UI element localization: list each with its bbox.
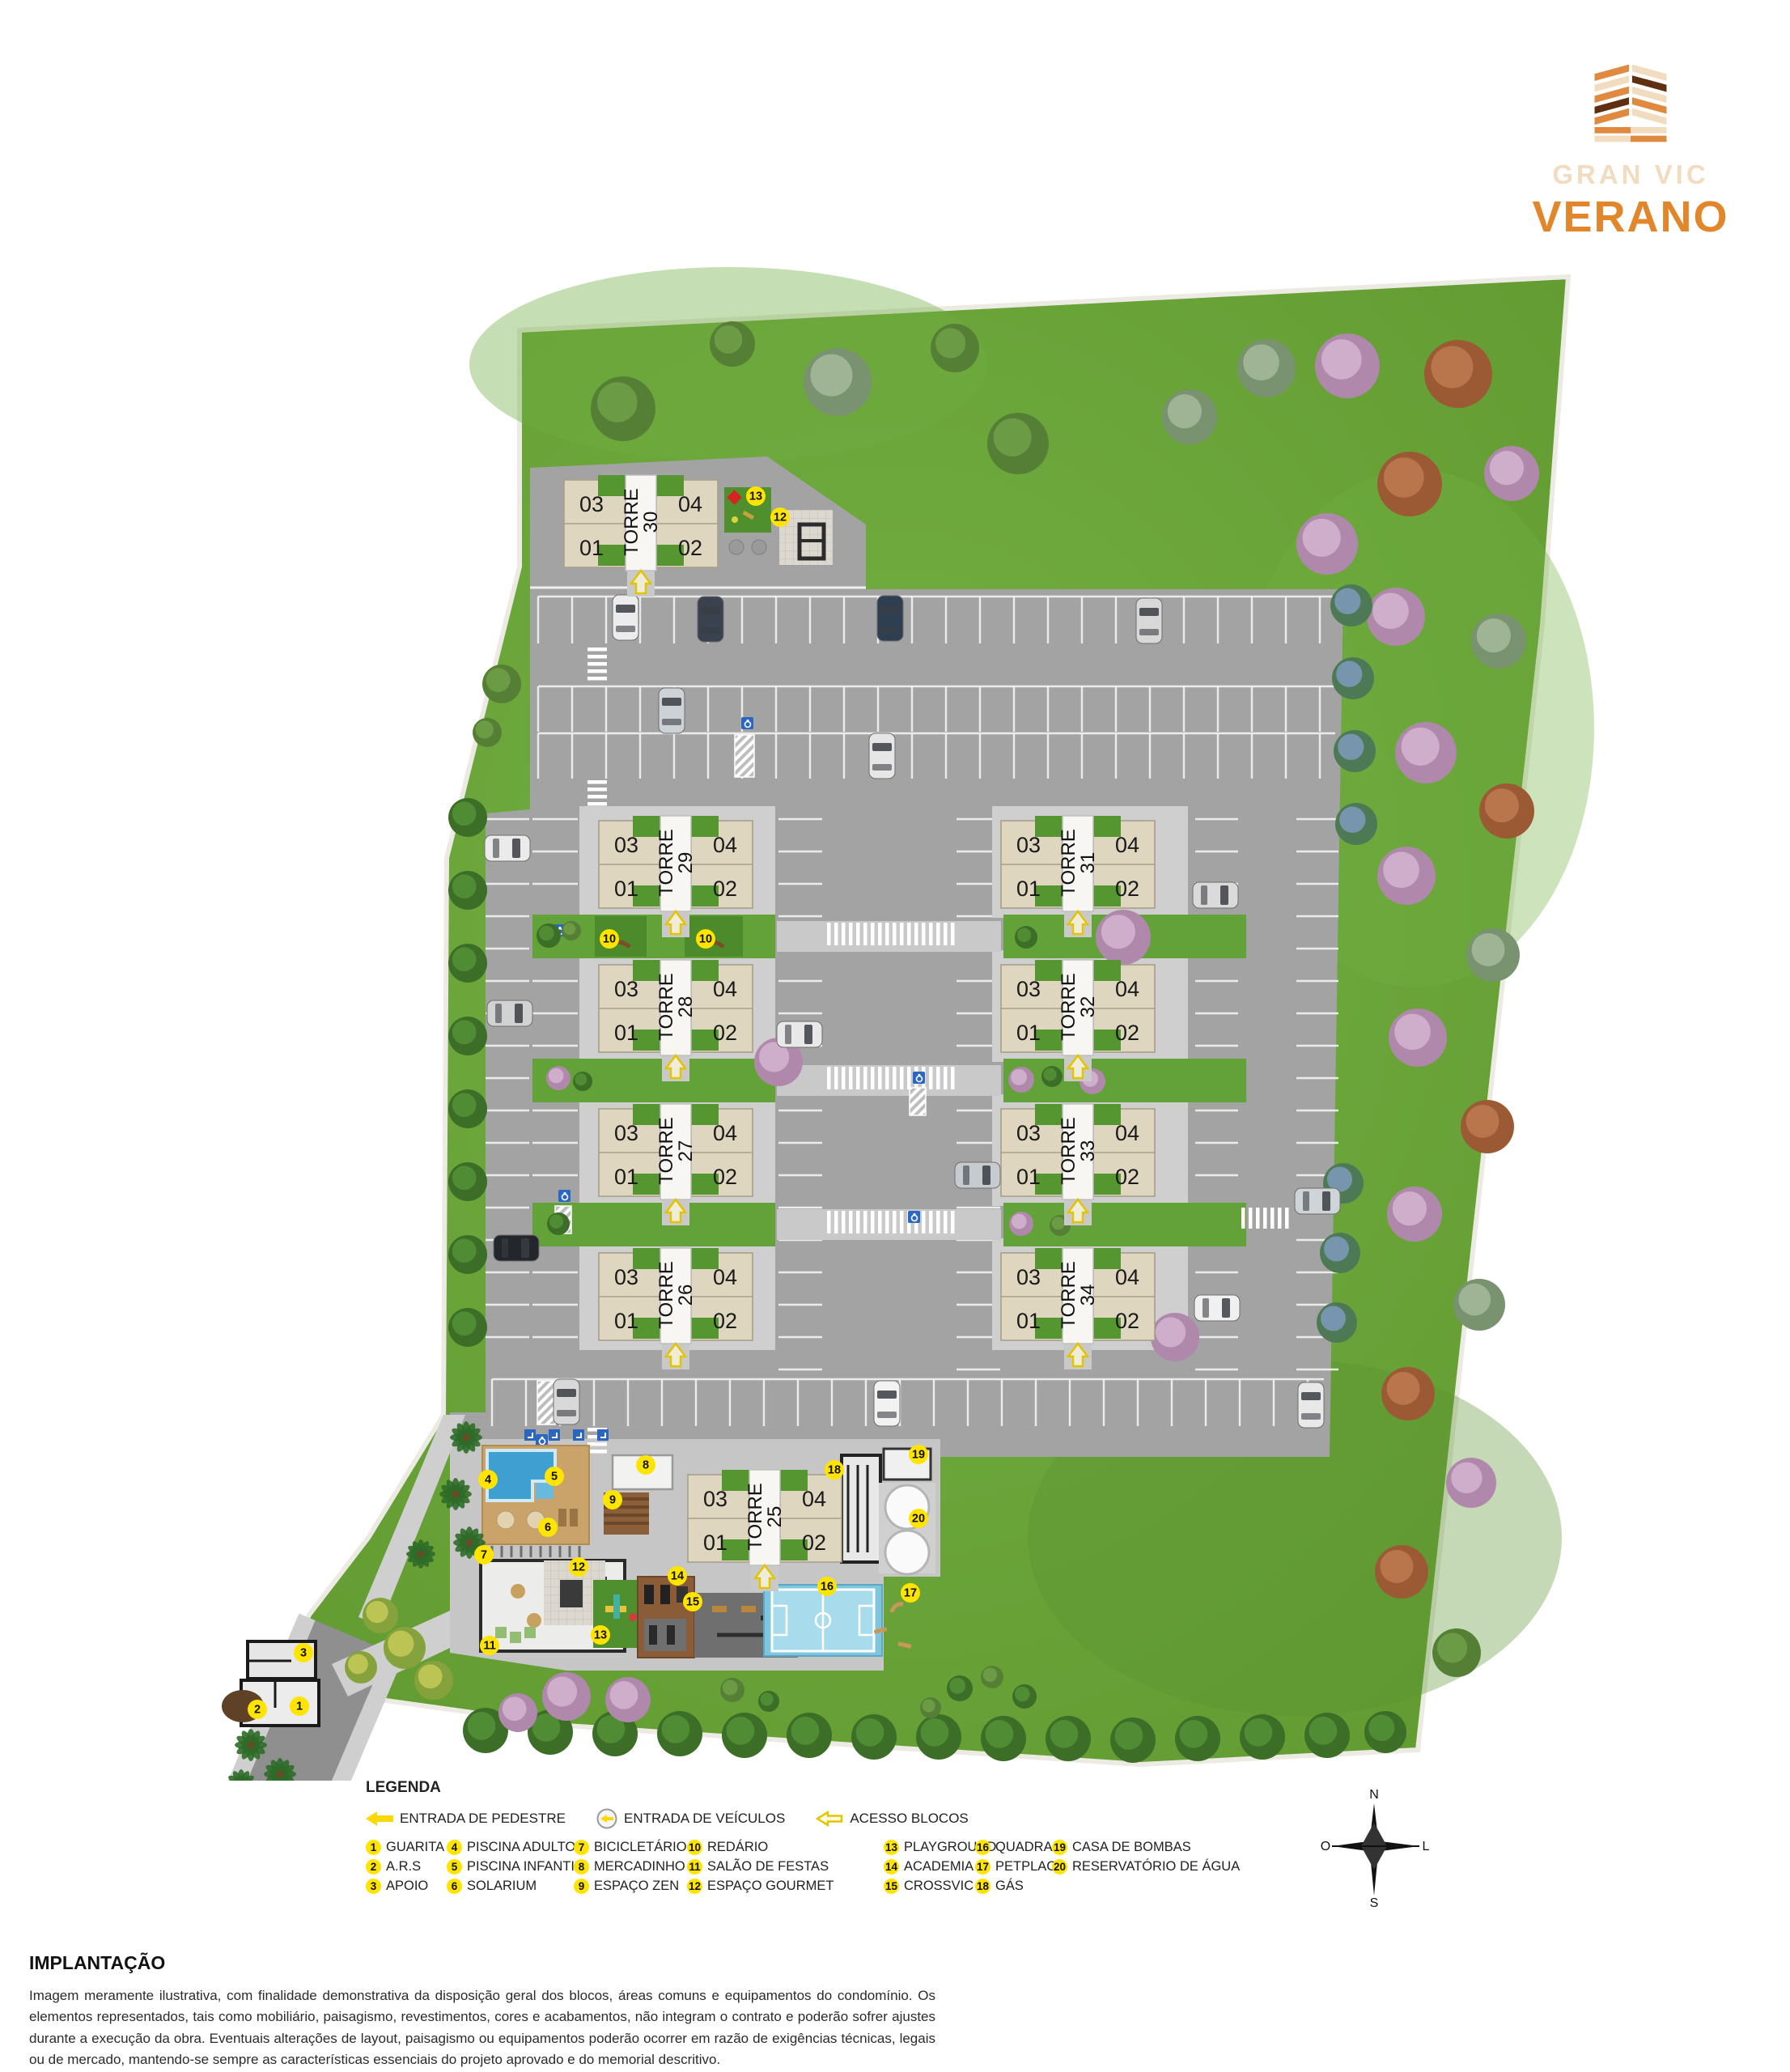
handicap-sign xyxy=(536,1434,548,1446)
unit-label: 02 xyxy=(1115,1309,1139,1333)
unit-label: 01 xyxy=(1016,1021,1041,1045)
tree xyxy=(1453,1279,1505,1331)
tree xyxy=(1446,1458,1496,1508)
tree xyxy=(1320,1233,1360,1273)
unit-label: 04 xyxy=(713,833,737,857)
legend-item-label: GUARITA xyxy=(386,1840,444,1855)
tree xyxy=(1387,1187,1442,1242)
unit-label: 04 xyxy=(713,1121,737,1145)
tree xyxy=(947,1675,973,1701)
plan-marker-19: 19 xyxy=(909,1445,928,1464)
svg-text:TORRE: TORRE xyxy=(655,973,677,1041)
tree xyxy=(591,376,655,441)
legend-item-10: 10REDÁRIO xyxy=(687,1837,833,1857)
unit-label: 03 xyxy=(1016,977,1041,1001)
unit-label: 03 xyxy=(614,1265,638,1289)
brand-logo: GRAN VIC VERANO xyxy=(1521,57,1740,242)
tree xyxy=(1008,1067,1034,1093)
svg-text:30: 30 xyxy=(640,512,662,533)
plan-marker-14: 14 xyxy=(668,1566,687,1586)
compass-star xyxy=(1332,1803,1419,1896)
legend-item-1: 1GUARITA xyxy=(366,1837,444,1857)
tree xyxy=(657,1711,702,1756)
svg-text:TORRE: TORRE xyxy=(744,1483,766,1551)
tree xyxy=(1315,333,1380,398)
plan-marker-1: 1 xyxy=(290,1696,309,1716)
legend-item-number: 16 xyxy=(975,1840,990,1855)
compass-north: N xyxy=(1369,1788,1379,1802)
tree xyxy=(981,1716,1026,1761)
svg-text:33: 33 xyxy=(1077,1140,1099,1162)
svg-text:TORRE: TORRE xyxy=(1058,1117,1080,1185)
footer-disclaimer: Imagem meramente ilustrativa, com finali… xyxy=(29,1985,935,2070)
car xyxy=(698,597,723,642)
car xyxy=(777,1021,822,1047)
legend-item-number: 12 xyxy=(687,1879,702,1894)
tree xyxy=(546,1066,571,1090)
no-parking-hatch xyxy=(537,1381,555,1424)
plan-marker-18: 18 xyxy=(825,1460,844,1480)
svg-text:17: 17 xyxy=(904,1587,917,1600)
svg-text:15: 15 xyxy=(686,1596,699,1609)
svg-text:14: 14 xyxy=(671,1570,684,1583)
tree xyxy=(1395,722,1457,783)
tree xyxy=(1432,1628,1481,1677)
tree xyxy=(448,1162,487,1201)
svg-text:8: 8 xyxy=(643,1459,649,1472)
footer-title: IMPLANTAÇÃO xyxy=(29,1952,935,1974)
legend-entrance-label: ENTRADA DE VEÍCULOS xyxy=(624,1811,785,1827)
svg-text:1: 1 xyxy=(296,1700,303,1713)
handicap-sign xyxy=(908,1211,920,1223)
brand-building-icon xyxy=(1584,57,1678,151)
svg-text:29: 29 xyxy=(675,852,697,874)
legend-title: LEGENDA xyxy=(366,1779,1450,1797)
legend-item-number: 8 xyxy=(574,1859,589,1875)
legend-item-number: 10 xyxy=(687,1840,702,1855)
legend-column: 4PISCINA ADULTO5PISCINA INFANTIL6SOLARIU… xyxy=(447,1837,582,1896)
plan-marker-20: 20 xyxy=(909,1509,928,1528)
tree xyxy=(920,1697,941,1718)
car xyxy=(1298,1382,1324,1428)
legend-item-19: 19CASA DE BOMBAS xyxy=(1052,1837,1240,1857)
unit-label: 04 xyxy=(1115,1265,1139,1289)
plan-marker-13: 13 xyxy=(591,1625,610,1645)
unit-label: 03 xyxy=(1016,833,1041,857)
plan-marker-4: 4 xyxy=(478,1470,498,1489)
legend-item-label: ACADEMIA xyxy=(904,1859,973,1875)
tree xyxy=(720,1678,744,1702)
tree xyxy=(1296,513,1358,575)
svg-text:TORRE: TORRE xyxy=(655,1117,677,1185)
legend-item-number: 15 xyxy=(884,1879,899,1894)
legend-item-label: RESERVATÓRIO DE ÁGUA xyxy=(1072,1859,1240,1875)
svg-text:12: 12 xyxy=(572,1561,585,1574)
svg-text:26: 26 xyxy=(675,1284,697,1306)
block-access-arrow-icon xyxy=(816,1811,843,1827)
plan-marker-17: 17 xyxy=(901,1583,920,1603)
car xyxy=(1193,882,1238,908)
unit-label: 03 xyxy=(579,492,604,516)
unit-label: 02 xyxy=(713,1309,737,1333)
legend-item-12: 12ESPAÇO GOURMET xyxy=(687,1876,833,1896)
legend-item-9: 9ESPAÇO ZEN xyxy=(574,1876,687,1896)
tree xyxy=(448,944,487,983)
site-plan: 03040102TORRE3003040102TORRE2903040102TO… xyxy=(0,0,1790,1781)
car xyxy=(554,1379,579,1424)
tree xyxy=(1304,1713,1350,1758)
svg-text:13: 13 xyxy=(749,490,762,503)
legend-item-label: QUADRA xyxy=(995,1840,1053,1855)
unit-label: 04 xyxy=(1115,833,1139,857)
unit-label: 02 xyxy=(713,1165,737,1189)
car xyxy=(659,688,685,733)
legend-item-number: 18 xyxy=(975,1879,990,1894)
tree xyxy=(448,1308,487,1347)
car xyxy=(877,596,903,641)
plan-marker-16: 16 xyxy=(817,1577,837,1596)
tree xyxy=(537,923,561,948)
unit-label: 02 xyxy=(713,1021,737,1045)
tree xyxy=(414,1661,453,1700)
legend-item-label: CASA DE BOMBAS xyxy=(1072,1840,1191,1855)
unit-label: 04 xyxy=(802,1487,826,1511)
compass-rose: N S O L xyxy=(1319,1781,1432,1910)
plan-marker-11: 11 xyxy=(480,1636,499,1655)
tree xyxy=(542,1672,591,1721)
tree xyxy=(722,1713,767,1758)
tree xyxy=(498,1693,537,1732)
tree xyxy=(1012,1684,1037,1709)
tree xyxy=(1334,730,1376,772)
unit-label: 04 xyxy=(678,492,702,516)
tree xyxy=(1332,657,1374,699)
unit-label: 04 xyxy=(713,977,737,1001)
legend-item-number: 2 xyxy=(366,1859,381,1875)
unit-label: 03 xyxy=(614,833,638,857)
tree xyxy=(562,921,581,940)
tree xyxy=(1162,389,1217,444)
tree xyxy=(1046,1716,1091,1761)
tree xyxy=(1367,588,1425,646)
tree xyxy=(573,1072,592,1091)
svg-text:20: 20 xyxy=(912,1513,925,1526)
unit-label: 01 xyxy=(1016,1165,1041,1189)
svg-text:2: 2 xyxy=(254,1704,261,1717)
tree xyxy=(1364,1711,1406,1753)
svg-text:12: 12 xyxy=(774,512,787,524)
car xyxy=(613,595,638,640)
tree xyxy=(482,664,521,703)
compass-south: S xyxy=(1370,1896,1379,1910)
legend-item-7: 7BICICLETÁRIO xyxy=(574,1837,687,1857)
legend-item-label: SOLARIUM xyxy=(467,1879,537,1894)
unit-label: 02 xyxy=(1115,1021,1139,1045)
implantation-page: { "brand": { "name_top": "GRAN VIC", "na… xyxy=(0,0,1790,2072)
plan-marker-9: 9 xyxy=(603,1490,622,1509)
svg-text:28: 28 xyxy=(675,996,697,1018)
tree xyxy=(1479,783,1534,839)
plan-marker-12: 12 xyxy=(770,507,790,527)
tree xyxy=(1377,847,1436,905)
tree xyxy=(384,1627,426,1669)
svg-text:34: 34 xyxy=(1077,1284,1099,1306)
tree xyxy=(1041,1066,1063,1087)
unit-label: 02 xyxy=(802,1531,826,1555)
legend-entrance-label: ACESSO BLOCOS xyxy=(850,1811,968,1827)
unit-label: 01 xyxy=(1016,1309,1041,1333)
tree xyxy=(1330,584,1372,626)
pool-deck xyxy=(482,1446,589,1544)
tree xyxy=(448,1235,487,1274)
tree xyxy=(1096,910,1151,965)
car xyxy=(494,1235,539,1261)
no-parking-hatch xyxy=(735,735,754,777)
unit-label: 01 xyxy=(579,536,604,560)
legend-item-number: 11 xyxy=(687,1859,702,1875)
tree xyxy=(1110,1717,1156,1763)
sports-court xyxy=(764,1585,882,1656)
plan-marker-3: 3 xyxy=(294,1643,313,1662)
legend-item-20: 20RESERVATÓRIO DE ÁGUA xyxy=(1052,1857,1240,1876)
tree xyxy=(1015,926,1037,949)
svg-text:TORRE: TORRE xyxy=(1058,829,1080,897)
legend-item-label: PISCINA INFANTIL xyxy=(467,1859,582,1875)
car xyxy=(1136,598,1162,643)
car xyxy=(487,1000,532,1026)
legend-item-number: 4 xyxy=(447,1840,462,1855)
legend-item-label: ESPAÇO ZEN xyxy=(594,1879,679,1894)
legend-item-number: 13 xyxy=(884,1840,899,1855)
tree xyxy=(1151,1313,1199,1361)
plan-marker-15: 15 xyxy=(683,1592,702,1611)
pedestrian-entrance-arrow-icon xyxy=(366,1811,393,1826)
compass-east: L xyxy=(1423,1840,1430,1853)
legend-item-label: REDÁRIO xyxy=(707,1840,768,1855)
unit-label: 02 xyxy=(713,877,737,901)
svg-text:18: 18 xyxy=(828,1464,841,1477)
unit-label: 03 xyxy=(1016,1121,1041,1145)
tree xyxy=(758,1691,779,1712)
car xyxy=(1194,1295,1240,1321)
legend-column: 7BICICLETÁRIO8MERCADINHO9ESPAÇO ZEN xyxy=(574,1837,687,1896)
unit-label: 04 xyxy=(713,1265,737,1289)
unit-label: 01 xyxy=(614,1021,638,1045)
svg-text:16: 16 xyxy=(821,1581,833,1594)
legend-item-5: 5PISCINA INFANTIL xyxy=(447,1857,582,1876)
tree xyxy=(1009,1212,1033,1236)
tree xyxy=(1335,803,1377,845)
legend-item-label: ESPAÇO GOURMET xyxy=(707,1879,833,1894)
legend-item-number: 1 xyxy=(366,1840,381,1855)
plan-marker-13: 13 xyxy=(746,486,766,506)
legend-entrance-blocks: ACESSO BLOCOS xyxy=(816,1811,968,1827)
tree xyxy=(1461,1100,1514,1153)
car xyxy=(1295,1188,1340,1214)
tree xyxy=(851,1714,897,1760)
tree xyxy=(710,321,755,367)
tree xyxy=(931,324,979,372)
svg-text:TORRE: TORRE xyxy=(1058,973,1080,1041)
legend-entrance-vehicle: ENTRADA DE VEÍCULOS xyxy=(596,1808,785,1829)
legend-item-label: BICICLETÁRIO xyxy=(594,1840,687,1855)
svg-text:9: 9 xyxy=(609,1494,616,1507)
vehicle-entrance-icon xyxy=(596,1808,617,1829)
tree xyxy=(787,1713,832,1758)
legend-entrances: ENTRADA DE PEDESTRE ENTRADA DE VEÍCULOS … xyxy=(366,1808,969,1829)
legend-item-number: 14 xyxy=(884,1859,899,1875)
legend-item-8: 8MERCADINHO xyxy=(574,1857,687,1876)
legend-item-6: 6SOLARIUM xyxy=(447,1876,582,1896)
unit-label: 04 xyxy=(1115,1121,1139,1145)
unit-label: 01 xyxy=(614,877,638,901)
legend-item-label: GÁS xyxy=(995,1879,1024,1894)
svg-text:31: 31 xyxy=(1077,852,1099,874)
handicap-sign xyxy=(741,717,753,729)
tree xyxy=(1424,340,1492,408)
svg-text:10: 10 xyxy=(603,933,616,946)
tree xyxy=(605,1677,651,1722)
tree xyxy=(1484,446,1539,501)
unit-label: 02 xyxy=(678,536,702,560)
svg-text:7: 7 xyxy=(481,1549,487,1562)
legend-item-4: 4PISCINA ADULTO xyxy=(447,1837,582,1857)
legend-item-label: MERCADINHO xyxy=(594,1859,685,1875)
unit-label: 03 xyxy=(614,977,638,1001)
plan-marker-7: 7 xyxy=(474,1545,494,1565)
car xyxy=(485,835,530,861)
unit-label: 03 xyxy=(703,1487,727,1511)
legend-item-number: 17 xyxy=(975,1859,990,1875)
svg-text:19: 19 xyxy=(912,1449,925,1462)
legend-item-label: CROSSVIC xyxy=(904,1879,973,1894)
handicap-sign xyxy=(913,1072,925,1084)
gas-station xyxy=(842,1455,880,1562)
legend-item-label: APOIO xyxy=(386,1879,428,1894)
legend-item-11: 11SALÃO DE FESTAS xyxy=(687,1857,833,1876)
tree xyxy=(1240,1714,1285,1760)
legend-item-label: SALÃO DE FESTAS xyxy=(707,1859,829,1875)
car xyxy=(955,1162,1000,1188)
water-tanks xyxy=(879,1483,935,1574)
no-parking-hatch xyxy=(910,1088,926,1115)
svg-text:13: 13 xyxy=(594,1629,607,1642)
svg-text:6: 6 xyxy=(545,1522,551,1535)
plan-marker-8: 8 xyxy=(636,1455,655,1475)
unit-label: 03 xyxy=(1016,1265,1041,1289)
plan-marker-5: 5 xyxy=(545,1467,564,1486)
legend-item-number: 20 xyxy=(1052,1859,1067,1875)
tree xyxy=(804,348,872,416)
svg-text:TORRE: TORRE xyxy=(621,488,643,556)
svg-text:10: 10 xyxy=(699,933,712,946)
tree xyxy=(1389,1008,1447,1067)
legend-column: 10REDÁRIO11SALÃO DE FESTAS12ESPAÇO GOURM… xyxy=(687,1837,833,1896)
tree xyxy=(916,1714,961,1760)
tree xyxy=(1317,1302,1357,1343)
unit-label: 01 xyxy=(1016,877,1041,901)
unit-label: 01 xyxy=(614,1165,638,1189)
unit-label: 02 xyxy=(1115,1165,1139,1189)
svg-text:TORRE: TORRE xyxy=(1058,1261,1080,1329)
tree xyxy=(345,1651,377,1683)
brand-name-top: GRAN VIC xyxy=(1521,159,1740,190)
legend-item-label: A.R.S xyxy=(386,1859,421,1875)
svg-text:27: 27 xyxy=(675,1140,697,1162)
unit-label: 02 xyxy=(1115,877,1139,901)
handicap-sign xyxy=(558,1190,571,1202)
tree xyxy=(987,413,1049,474)
legend-item-3: 3APOIO xyxy=(366,1876,444,1896)
svg-text:3: 3 xyxy=(300,1647,307,1660)
tree xyxy=(981,1666,1003,1688)
unit-label: 01 xyxy=(703,1531,727,1555)
plan-marker-12: 12 xyxy=(569,1557,588,1577)
car xyxy=(869,733,895,779)
svg-text:25: 25 xyxy=(764,1506,786,1528)
plan-marker-6: 6 xyxy=(538,1518,558,1537)
legend-item-number: 9 xyxy=(574,1879,589,1894)
svg-text:11: 11 xyxy=(483,1640,495,1653)
plan-marker-2: 2 xyxy=(248,1700,267,1719)
gym-building xyxy=(638,1577,694,1658)
legend-column: 19CASA DE BOMBAS20RESERVATÓRIO DE ÁGUA xyxy=(1052,1837,1240,1876)
tree xyxy=(448,798,487,837)
tree xyxy=(448,1089,487,1128)
unit-label: 01 xyxy=(614,1309,638,1333)
legend: LEGENDA ENTRADA DE PEDESTRE ENTRADA DE V… xyxy=(366,1779,1450,1909)
legend-item-number: 5 xyxy=(447,1859,462,1875)
car xyxy=(874,1381,900,1426)
unit-label: 04 xyxy=(1115,977,1139,1001)
tree xyxy=(1471,614,1526,669)
legend-item-2: 2A.R.S xyxy=(366,1857,444,1876)
legend-item-number: 7 xyxy=(574,1840,589,1855)
legend-item-number: 3 xyxy=(366,1879,381,1894)
plan-marker-10: 10 xyxy=(600,929,619,949)
svg-text:TORRE: TORRE xyxy=(655,1261,677,1329)
legend-column: 1GUARITA2A.R.S3APOIO xyxy=(366,1837,444,1896)
svg-text:5: 5 xyxy=(551,1471,558,1484)
legend-item-label: PISCINA ADULTO xyxy=(467,1840,575,1855)
legend-item-number: 19 xyxy=(1052,1840,1067,1855)
tree xyxy=(1381,1367,1435,1420)
svg-text:32: 32 xyxy=(1077,996,1099,1018)
plan-marker-10: 10 xyxy=(696,929,715,949)
tree xyxy=(448,1017,487,1055)
compass-west: O xyxy=(1321,1840,1330,1853)
tree xyxy=(473,718,502,747)
footer: IMPLANTAÇÃO Imagem meramente ilustrativa… xyxy=(29,1952,935,2070)
tree xyxy=(1375,1545,1428,1599)
unit-label: 03 xyxy=(614,1121,638,1145)
tree xyxy=(363,1598,398,1633)
tree xyxy=(547,1212,570,1235)
svg-text:TORRE: TORRE xyxy=(655,829,677,897)
legend-item-18: 18GÁS xyxy=(975,1876,1065,1896)
svg-text:4: 4 xyxy=(485,1474,491,1487)
tree xyxy=(1377,452,1442,516)
brand-name-bottom: VERANO xyxy=(1521,192,1740,242)
tree xyxy=(1237,339,1296,397)
tree xyxy=(1466,928,1520,982)
tree xyxy=(448,871,487,910)
legend-entrance-label: ENTRADA DE PEDESTRE xyxy=(400,1811,566,1827)
tree xyxy=(1175,1716,1220,1761)
legend-item-number: 6 xyxy=(447,1879,462,1894)
legend-entrance-pedestrian: ENTRADA DE PEDESTRE xyxy=(366,1811,566,1827)
